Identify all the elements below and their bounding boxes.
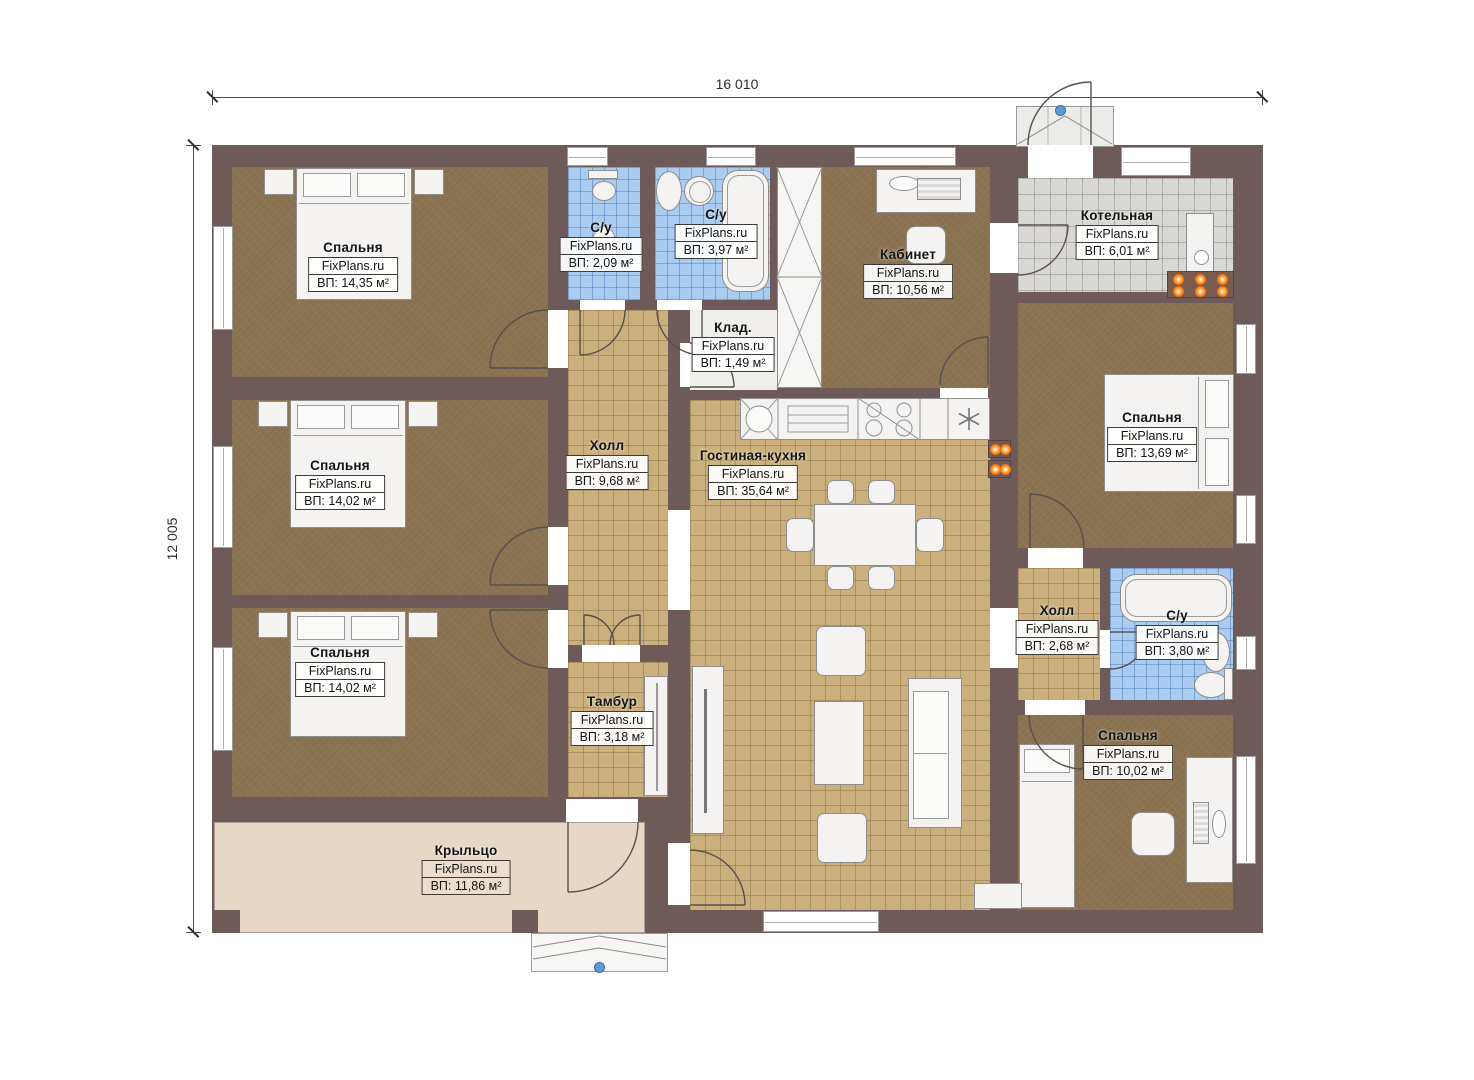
room-name: С/у [1136,608,1219,623]
brand-watermark: FixPlans.ru [1017,621,1098,638]
room-area: ВП: 3,18 м² [572,729,653,745]
room-label-bedroom-bottom-left: Спальня FixPlans.ru ВП: 14,02 м² [295,645,385,697]
room-name: Спальня [295,458,385,473]
room-name: Гостиная-кухня [700,448,806,463]
door-swings [0,0,1474,1080]
room-area: ВП: 10,02 м² [1084,763,1172,779]
brand-watermark: FixPlans.ru [572,712,653,729]
room-area: ВП: 14,02 м² [296,680,384,696]
room-name: Спальня [308,240,398,255]
room-area: ВП: 9,68 м² [567,473,648,489]
room-label-bedroom-bottom-right: Спальня FixPlans.ru ВП: 10,02 м² [1083,728,1173,780]
room-area: ВП: 3,80 м² [1137,643,1218,659]
brand-watermark: FixPlans.ru [423,861,510,878]
brand-watermark: FixPlans.ru [709,466,797,483]
brand-watermark: FixPlans.ru [676,225,757,242]
room-label-office: Кабинет FixPlans.ru ВП: 10,56 м² [863,247,953,299]
room-area: ВП: 14,02 м² [296,493,384,509]
room-label-bedroom-right: Спальня FixPlans.ru ВП: 13,69 м² [1107,410,1197,462]
room-area: ВП: 14,35 м² [309,275,397,291]
room-label-bedroom-top-left: Спальня FixPlans.ru ВП: 14,35 м² [308,240,398,292]
room-label-boiler: Котельная FixPlans.ru ВП: 6,01 м² [1076,208,1159,260]
brand-watermark: FixPlans.ru [309,258,397,275]
room-name: Крыльцо [422,843,511,858]
room-name: С/у [560,220,643,235]
brand-watermark: FixPlans.ru [1077,226,1158,243]
room-name: Спальня [295,645,385,660]
room-name: Спальня [1107,410,1197,425]
room-label-bathroom-main: С/у FixPlans.ru ВП: 3,97 м² [675,207,758,259]
room-label-bathroom-right: С/у FixPlans.ru ВП: 3,80 м² [1136,608,1219,660]
brand-watermark: FixPlans.ru [296,663,384,680]
room-name: Холл [1016,603,1099,618]
room-area: ВП: 13,69 м² [1108,445,1196,461]
room-label-hall-main: Холл FixPlans.ru ВП: 9,68 м² [566,438,649,490]
room-area: ВП: 6,01 м² [1077,243,1158,259]
room-name: Клад. [692,320,775,335]
brand-watermark: FixPlans.ru [561,238,642,255]
room-area: ВП: 35,64 м² [709,483,797,499]
room-area: ВП: 1,49 м² [693,355,774,371]
room-label-storage: Клад. FixPlans.ru ВП: 1,49 м² [692,320,775,372]
room-label-porch: Крыльцо FixPlans.ru ВП: 11,86 м² [422,843,511,895]
room-name: Холл [566,438,649,453]
room-name: Котельная [1076,208,1159,223]
room-label-living-kitchen: Гостиная-кухня FixPlans.ru ВП: 35,64 м² [700,448,806,500]
room-name: С/у [675,207,758,222]
room-label-hall-small: Холл FixPlans.ru ВП: 2,68 м² [1016,603,1099,655]
brand-watermark: FixPlans.ru [864,265,952,282]
brand-watermark: FixPlans.ru [567,456,648,473]
brand-watermark: FixPlans.ru [1084,746,1172,763]
room-label-tambour: Тамбур FixPlans.ru ВП: 3,18 м² [571,694,654,746]
brand-watermark: FixPlans.ru [693,338,774,355]
room-name: Спальня [1083,728,1173,743]
brand-watermark: FixPlans.ru [296,476,384,493]
room-area: ВП: 2,68 м² [1017,638,1098,654]
room-area: ВП: 11,86 м² [423,878,510,894]
room-area: ВП: 10,56 м² [864,282,952,298]
brand-watermark: FixPlans.ru [1137,626,1218,643]
room-label-bathroom-small: С/у FixPlans.ru ВП: 2,09 м² [560,220,643,272]
room-area: ВП: 3,97 м² [676,242,757,258]
brand-watermark: FixPlans.ru [1108,428,1196,445]
room-name: Кабинет [863,247,953,262]
room-area: ВП: 2,09 м² [561,255,642,271]
floor-plan-canvas: 16 010 12 005 [0,0,1474,1080]
room-name: Тамбур [571,694,654,709]
room-label-bedroom-mid-left: Спальня FixPlans.ru ВП: 14,02 м² [295,458,385,510]
